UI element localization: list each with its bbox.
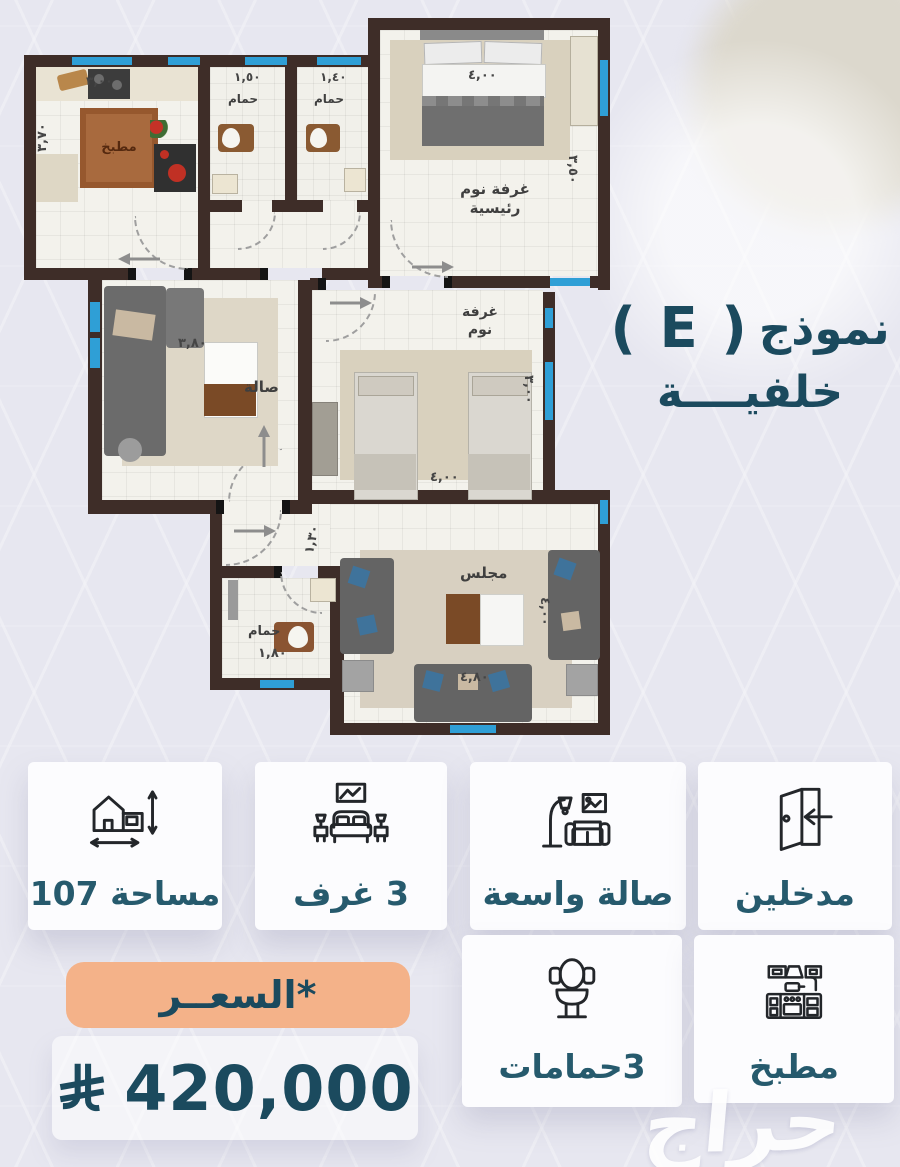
door-arrow-icon — [328, 296, 372, 310]
stove-burner-2 — [112, 80, 122, 90]
toilet-icon — [530, 947, 614, 1043]
majlis-label: مجلس — [460, 564, 507, 583]
master-pillow-2 — [484, 41, 543, 65]
door-arrow-icon — [232, 524, 276, 538]
hall-sofa-pillow — [112, 309, 155, 340]
majlis-side-table-2 — [566, 664, 598, 696]
majlis-side-table — [342, 660, 374, 692]
red-pot-2 — [160, 150, 169, 159]
toilet-icon — [530, 953, 614, 1037]
kitchen-right-wall — [198, 55, 210, 268]
majlis-pillow-blue-2 — [356, 614, 377, 635]
bedroom-bed2-pillow — [472, 376, 528, 396]
bedroom-label-line1: غرفة — [450, 304, 510, 322]
bath2-bottom-wall-2 — [357, 200, 368, 212]
bath2-toilet-seat — [310, 128, 327, 148]
floor-plan: مطبخ ٤,٠٠ ٣,٥٠ غرفة نوم رئيسية — [22, 12, 614, 760]
master-pillow — [424, 41, 483, 65]
hall-bedroom-divider-wall — [298, 280, 312, 504]
bath1-bottom-wall-2 — [272, 200, 297, 212]
master-window — [600, 60, 608, 116]
hall-dim: ٣,٨٠ — [178, 336, 207, 351]
model-title-line1: نموذج ( E ) — [606, 296, 894, 361]
sofa-lamp-icon — [535, 774, 621, 870]
price-badge: *السعــر — [66, 962, 410, 1028]
kitchen-door-jamb — [128, 268, 136, 280]
kitchen-icon — [752, 953, 836, 1037]
bedroom-dim-height: ٣,٠٠ — [521, 375, 536, 404]
model-title-prefix: نموذج — [759, 302, 890, 355]
master-bed-headboard — [420, 30, 544, 40]
master-dim-width: ٤,٠٠ — [468, 68, 497, 83]
master-closet — [570, 36, 598, 126]
bath1-sink — [212, 174, 238, 194]
bath2-dim: ١,٤٠ — [320, 70, 347, 84]
kitchen-window — [72, 57, 132, 65]
bath1-dim: ١,٥٠ — [234, 70, 261, 84]
bedroom-bed2-blanket — [468, 454, 530, 490]
door-arrow-icon — [257, 425, 271, 469]
majlis-window — [450, 725, 496, 733]
door-entry-icon — [752, 779, 838, 865]
master-room-label: غرفة نوم رئيسية — [430, 180, 560, 218]
kitchen-left-wall — [24, 55, 36, 280]
feature-card-rooms: 3 غرف — [255, 762, 447, 930]
sofa-lamp-icon — [535, 779, 621, 865]
bath3-dim: ١,٨٠ — [258, 646, 287, 661]
bedroom-window-2 — [545, 362, 553, 420]
master-right-wall — [598, 18, 610, 290]
corridor-door-jamb — [260, 268, 268, 280]
master-window-2 — [550, 278, 590, 286]
majlis-window-2 — [600, 500, 608, 524]
hall-bottom-wall — [88, 500, 222, 514]
price-panel: 420,000 — [52, 1036, 418, 1140]
bath3-top-wall — [210, 566, 280, 578]
model-title: نموذج ( E ) خلفيــــة — [606, 296, 894, 418]
kitchen-plant — [150, 120, 168, 138]
bath3-toilet-seat — [288, 626, 308, 648]
bath1-label: حمام — [228, 92, 258, 107]
feature-label-hall: صالة واسعة — [482, 874, 673, 913]
corridor-bottom-wall — [210, 268, 266, 280]
master-bottom-wall-2 — [448, 276, 550, 288]
red-pot — [168, 164, 186, 182]
majlis-pillow-beige — [561, 611, 581, 631]
kitchen-bottom-wall — [24, 268, 134, 280]
bath1-toilet-seat — [222, 128, 240, 148]
majlis-dim-width: ٤,٨٠ — [460, 670, 489, 685]
master-room-label-line1: غرفة نوم — [430, 180, 560, 199]
bedroom-window — [545, 308, 553, 328]
feature-card-hall: صالة واسعة — [470, 762, 686, 930]
feature-card-area: مساحة 107 — [28, 762, 222, 930]
hall-window-2 — [90, 338, 100, 368]
kitchen-counter-left — [36, 154, 78, 202]
master-room-label-line2: رئيسية — [430, 199, 560, 218]
master-left-wall — [368, 18, 380, 276]
bath-divider-wall — [285, 55, 297, 200]
model-title-letter: ( E ) — [610, 296, 748, 361]
kitchen-window-2 — [168, 57, 200, 65]
bedroom-dim-width: ٤,٠٠ — [430, 470, 459, 485]
majlis-coffee-table — [446, 594, 480, 644]
master-top-wall — [368, 18, 610, 30]
entry-left-wall — [210, 500, 222, 690]
door-arrow-icon — [410, 260, 454, 274]
bath2-window — [317, 57, 361, 65]
bath1-bottom-wall — [210, 200, 242, 212]
entry-door-jamb-2 — [282, 500, 290, 514]
price-badge-label: *السعــر — [160, 973, 317, 1017]
house-measure-icon — [82, 779, 168, 865]
kitchen-rug-label: مطبخ — [101, 140, 136, 156]
door-entry-icon — [752, 774, 838, 870]
bath2-label: حمام — [314, 92, 344, 107]
master-blanket-fold — [422, 96, 544, 106]
haraj-watermark: حراج — [582, 1073, 900, 1167]
hall-plant — [118, 438, 142, 462]
bedroom-icon — [308, 774, 394, 870]
bath2-bottom-wall — [297, 200, 323, 212]
price-amount: 420,000 — [124, 1052, 413, 1125]
bedroom-closet — [312, 402, 338, 476]
bedroom-door-jamb — [318, 278, 326, 290]
feature-label-area: مساحة 107 — [30, 874, 221, 913]
master-dim-height: ٣,٥٠ — [565, 155, 580, 184]
bedroom-bed1-pillow — [358, 376, 414, 396]
bath3-window — [260, 680, 294, 688]
bath3-label: حمام — [248, 624, 281, 640]
bath3-sink — [310, 578, 336, 602]
hall-window — [90, 302, 100, 332]
bedroom-icon — [308, 779, 394, 865]
flyer-page: مطبخ ٤,٠٠ ٣,٥٠ غرفة نوم رئيسية — [0, 0, 900, 1167]
hall-label: صالة — [244, 378, 279, 397]
model-title-subtitle: خلفيــــة — [606, 367, 894, 418]
kitchen-rug: مطبخ — [80, 108, 158, 188]
bath3-shower — [228, 580, 238, 620]
hall-bottom-wall-2 — [288, 500, 312, 514]
majlis-coffee-table-2 — [480, 594, 524, 646]
kitchen-icon — [752, 947, 836, 1043]
bath2-sink — [344, 168, 366, 192]
bath1-window — [245, 57, 287, 65]
master-door-jamb — [382, 276, 390, 288]
feature-label-rooms: 3 غرف — [293, 874, 409, 913]
entry-door-jamb — [216, 500, 224, 514]
majlis-dim-height: ٤,٠٠ — [537, 597, 552, 626]
feature-label-entrances: مدخلين — [735, 874, 855, 913]
feature-card-entrances: مدخلين — [698, 762, 892, 930]
saudi-riyal-symbol-icon — [56, 1059, 108, 1117]
bedroom-label-line2: نوم — [450, 322, 510, 340]
corridor-bottom-wall-2 — [322, 268, 368, 280]
bedroom-bed1-blanket — [354, 454, 416, 490]
bedroom-label: غرفة نوم — [450, 304, 510, 339]
master-bottom-wall-3 — [590, 276, 610, 288]
kitchen-dim-top: ٣,٠٠ — [86, 74, 113, 88]
house-measure-icon — [82, 774, 168, 870]
door-arrow-icon — [118, 252, 162, 266]
kitchen-dim-left: ٣,٧٠ — [35, 123, 50, 152]
